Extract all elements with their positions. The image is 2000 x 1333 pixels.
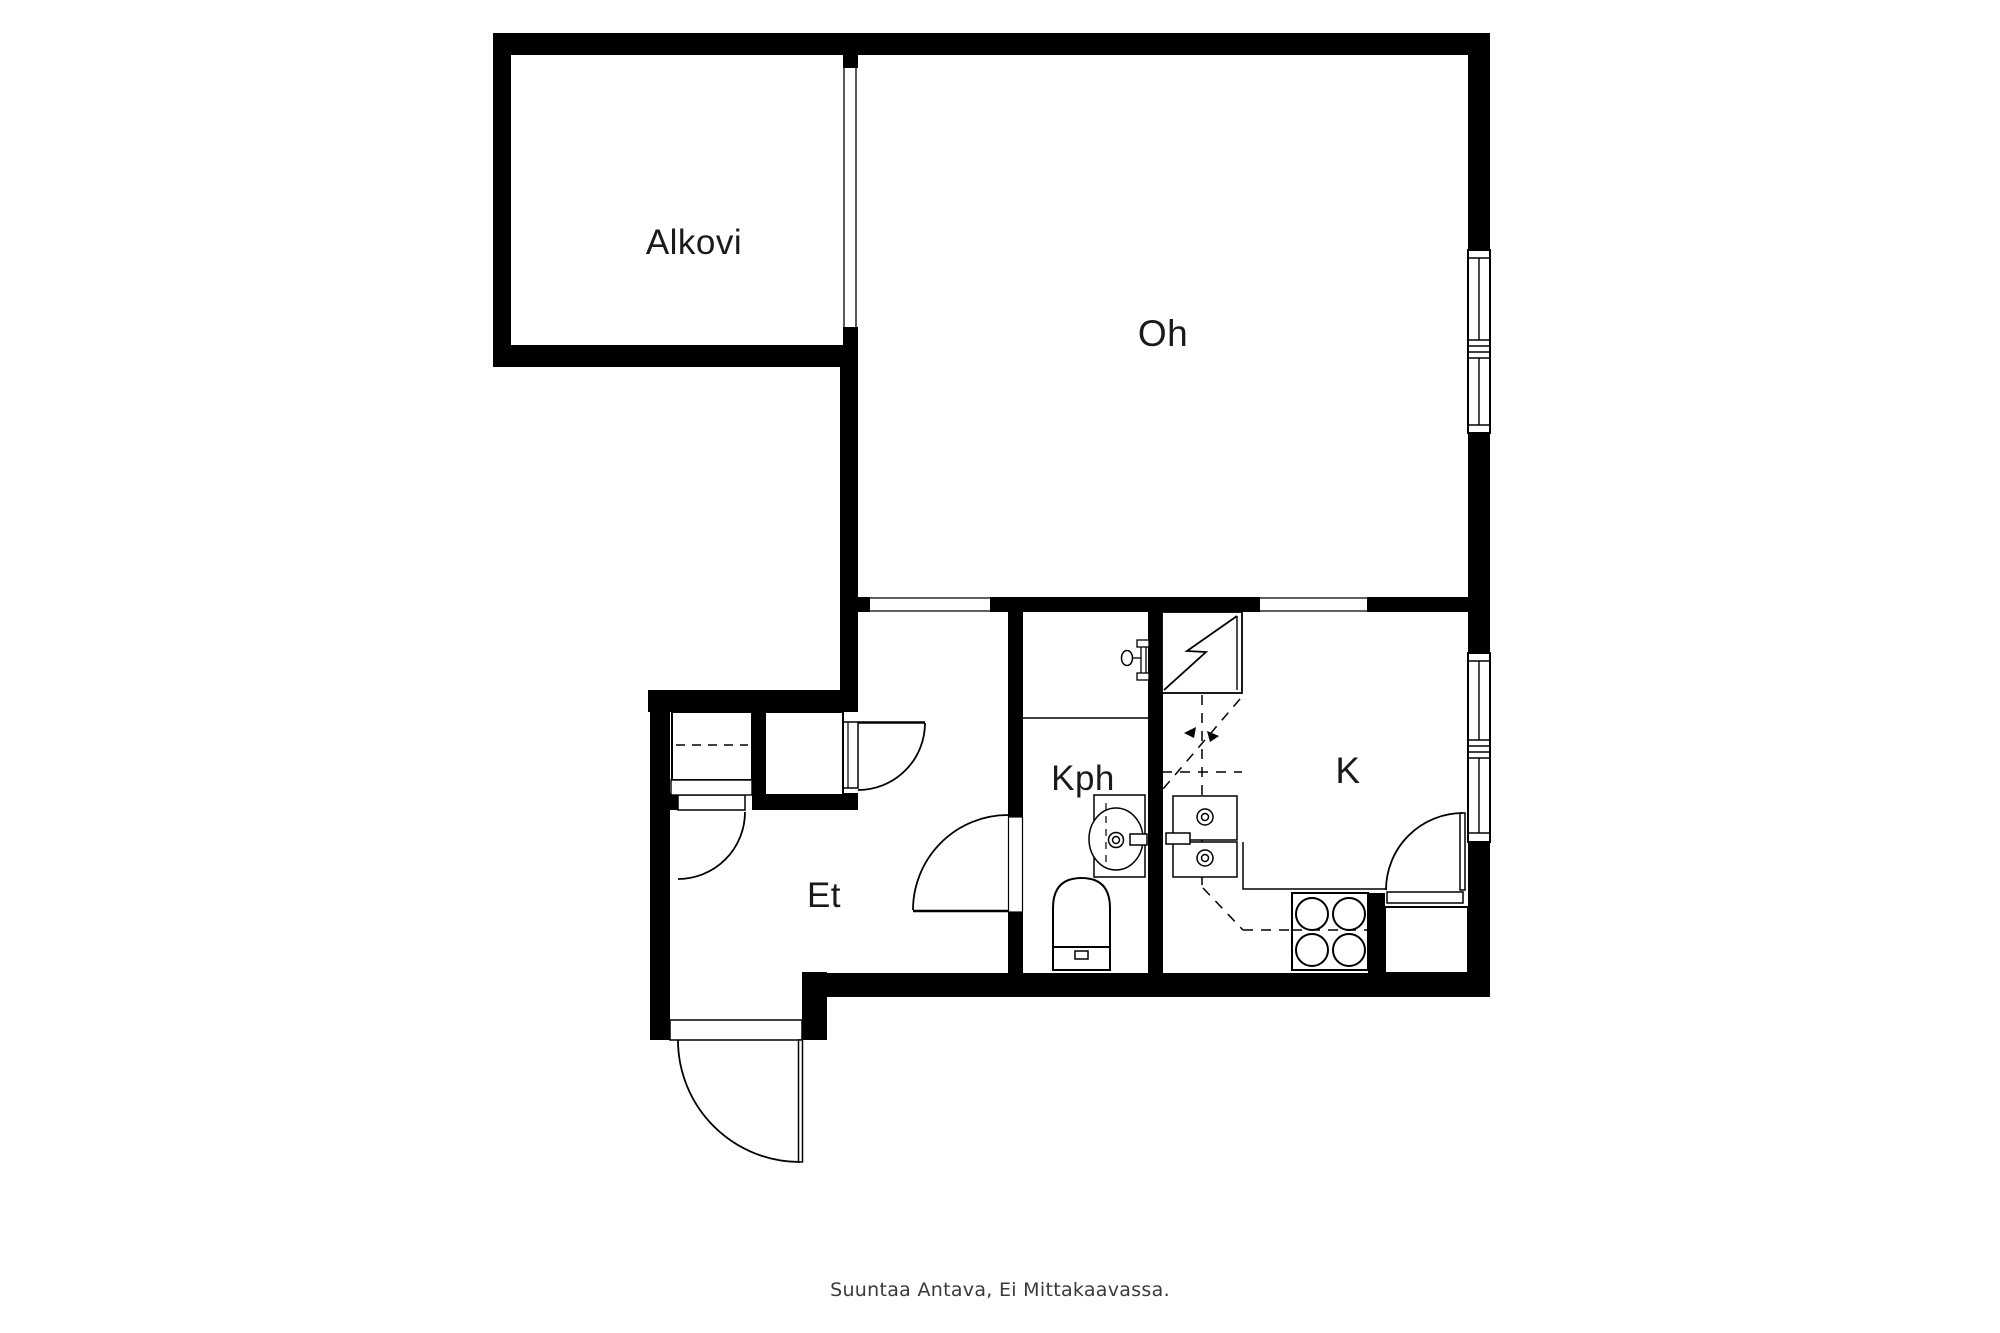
arrow-left-icon — [1184, 727, 1196, 738]
utility-cabinet — [1162, 612, 1242, 693]
bathroom-fixtures — [1023, 640, 1149, 970]
window-kitchen — [1468, 653, 1490, 842]
toilet — [1053, 878, 1110, 970]
counter-edge — [1243, 842, 1387, 889]
wall-kph-left-upper — [1008, 612, 1023, 817]
kitchen-sink-unit — [1166, 796, 1237, 877]
wall-closet-divider — [752, 712, 765, 795]
wall-alkovi-bottom — [493, 345, 858, 367]
burner-icon — [1296, 934, 1328, 966]
room-label-kph: Kph — [1051, 759, 1115, 799]
wall-right-upper — [1468, 33, 1490, 250]
wall-alkovi-right-lower — [840, 367, 858, 712]
wall-kitchen-nook-left — [1368, 893, 1385, 973]
wall-oh-bottom-c — [1367, 597, 1490, 612]
bathroom-door — [913, 815, 1023, 912]
wall-kph-left-lower — [1008, 912, 1023, 973]
shower-icon — [1122, 640, 1150, 680]
closet-door — [838, 722, 925, 790]
faucet-icon — [1166, 833, 1190, 844]
kitchen-closet-door — [1386, 813, 1465, 903]
wall-bottom — [827, 973, 1490, 997]
stove — [1292, 893, 1368, 970]
kitchen-corner-closet — [1385, 907, 1468, 973]
floorplan-drawing — [0, 0, 2000, 1333]
wardrobe-closet — [671, 712, 752, 795]
wall-alkovi-opening-stub-top — [843, 55, 858, 68]
wall-right-middle — [1468, 433, 1490, 653]
floorplan-canvas: Alkovi Oh Kph K Et Suuntaa Antava, Ei Mi… — [0, 0, 2000, 1333]
wardrobe-door — [678, 795, 745, 879]
room-label-alkovi: Alkovi — [646, 223, 742, 263]
burner-icon — [1333, 934, 1365, 966]
wall-kph-right — [1148, 612, 1163, 973]
wall-vestibule-right — [802, 972, 827, 1040]
wall-oh-bottom-a — [845, 597, 870, 612]
burner-icon — [1333, 898, 1365, 930]
entry-door — [670, 1020, 803, 1162]
window-oh — [1468, 250, 1490, 433]
wall-openings — [844, 68, 1367, 611]
wall-top — [493, 33, 1490, 55]
footer-disclaimer: Suuntaa Antava, Ei Mittakaavassa. — [830, 1279, 1170, 1301]
arrow-right-icon — [1207, 731, 1219, 742]
washbasin — [1089, 795, 1147, 877]
wall-et-top — [648, 690, 858, 712]
flush-button-icon — [1075, 951, 1088, 959]
burner-icon — [1296, 898, 1328, 930]
wall-et-left — [650, 690, 670, 1040]
wall-alkovi-left — [493, 33, 511, 367]
room-label-k: K — [1335, 750, 1360, 792]
hall-closet — [765, 712, 843, 795]
faucet-icon — [1130, 834, 1147, 845]
wall-oh-bottom-b — [990, 597, 1260, 612]
room-label-oh: Oh — [1138, 313, 1188, 355]
room-label-et: Et — [807, 876, 841, 916]
wall-alkovi-opening-stub-bottom — [843, 327, 858, 345]
